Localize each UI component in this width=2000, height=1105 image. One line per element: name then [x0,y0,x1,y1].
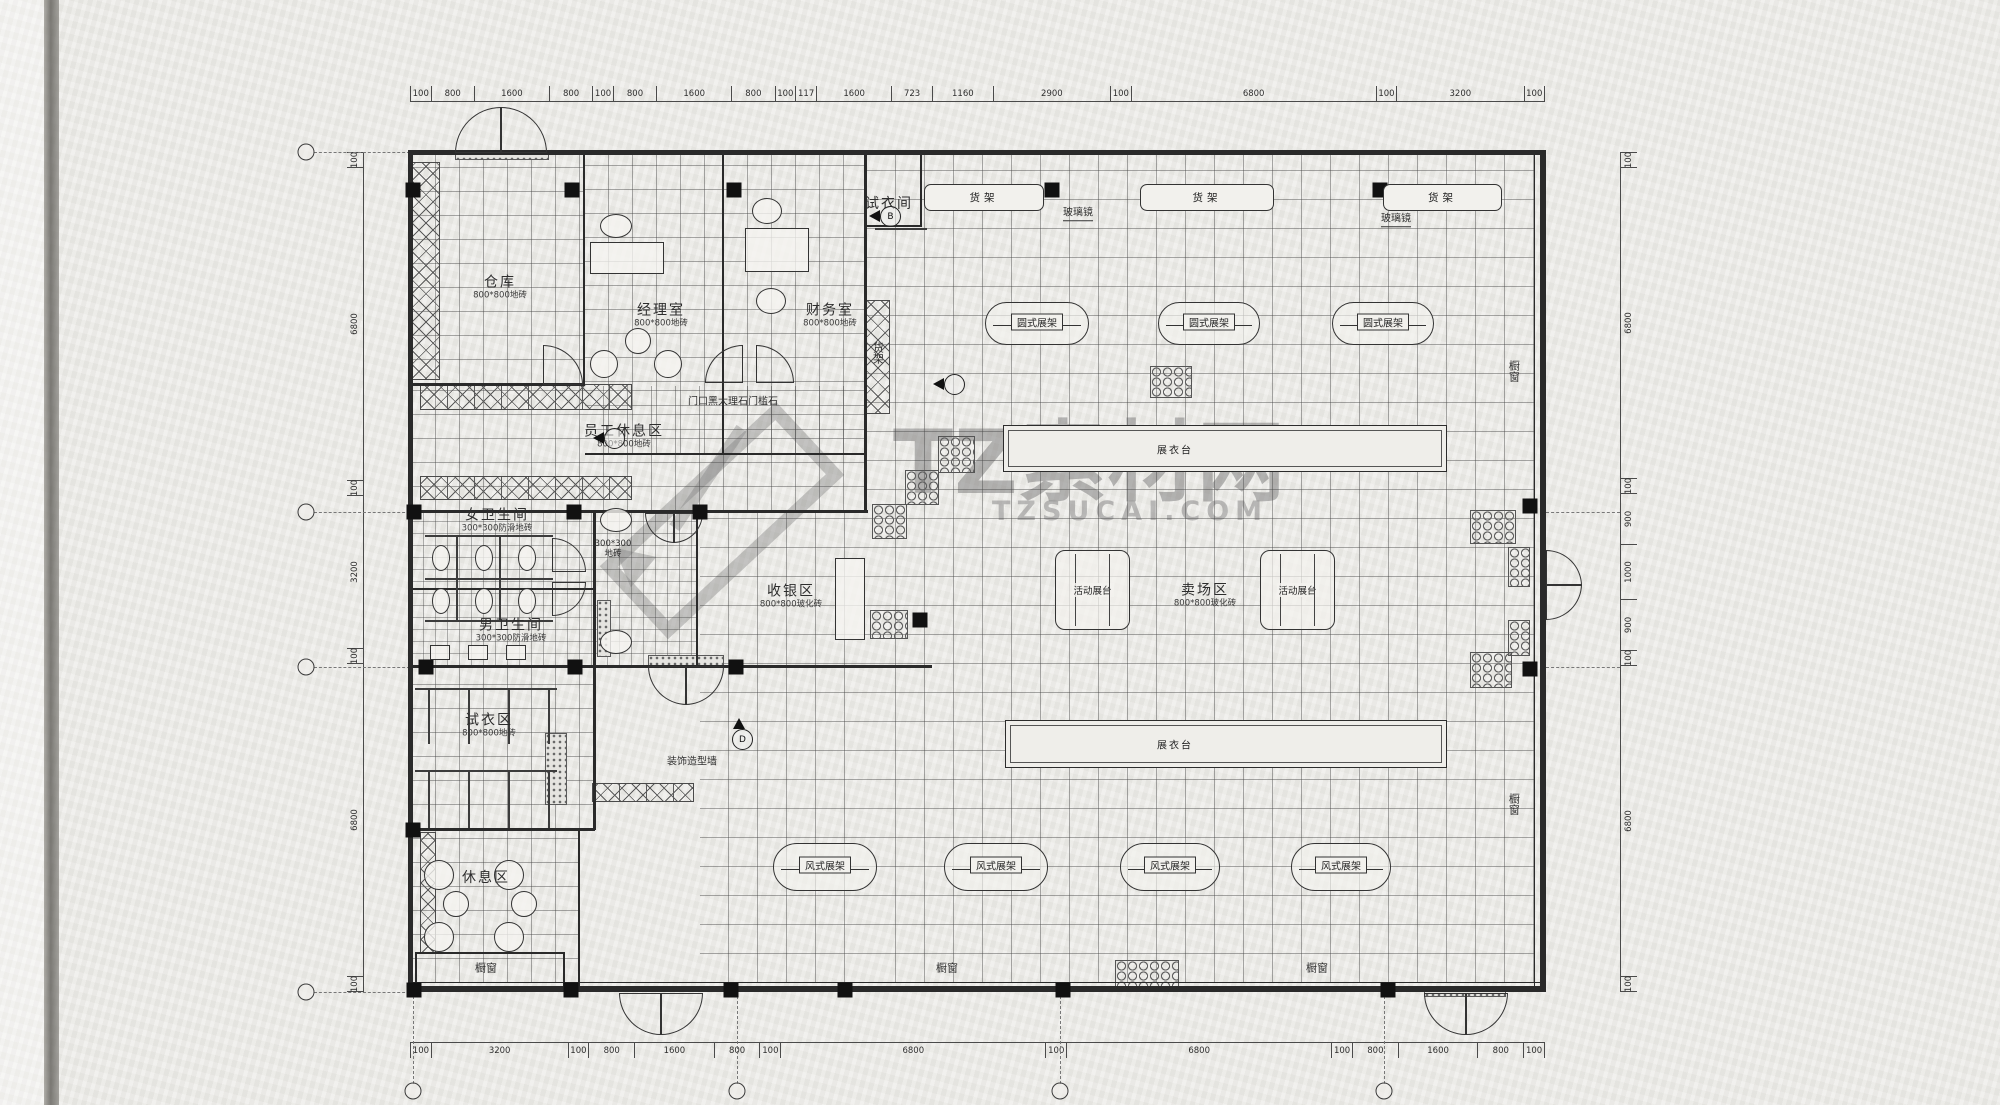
mosaic-patch [938,436,975,473]
corridor-finish-note: 300*300 地砖 [595,540,632,560]
floor-finish-note: 800*800地砖 [462,729,516,739]
room-label-women-restroom: 女卫生间300*300防滑地砖 [462,508,533,533]
dimension-segment: 1000 [1621,544,1637,599]
wall [1534,152,1535,992]
axis-line [314,152,410,153]
dimension-segment: 900 [1621,493,1637,544]
room-label-finance-office: 财务室800*800地砖 [803,303,857,328]
paper-edge-shadow [44,0,59,1105]
dimension-value: 3200 [489,1046,511,1056]
dimension-segment: 800 [613,86,656,101]
dimension-value: 1160 [952,89,974,99]
dimension-value: 800 [745,89,761,99]
dimension-value: 100 [570,1046,586,1056]
dimension-value: 6800 [1243,89,1265,99]
room-name: 财务室 [803,303,857,319]
room-label-fitting-area: 试衣区800*800地砖 [462,713,516,738]
door-swing-arc [1424,993,1466,1035]
dimension-segment: 800 [549,86,592,101]
sink-icon [600,508,632,532]
dimension-segment: 117 [795,86,816,101]
dimension-value: 100 [777,89,793,99]
door-swing-arc [1546,550,1582,586]
dimension-segment: 100 [1331,1043,1352,1058]
dimension-segment: 100 [1045,1043,1066,1058]
dimension-value: 100 [1334,1046,1350,1056]
marker-letter: B [880,206,901,227]
dimension-segment: 6800 [780,1043,1045,1058]
wall [410,828,595,831]
round-table-icon [511,891,537,917]
display-rack: 风式展架 [1120,843,1220,891]
dimension-value: 100 [350,152,360,168]
dimension-value: 100 [1624,152,1634,168]
shelf-hatch-band [592,783,694,802]
dimension-value: 800 [563,89,579,99]
structural-column [1056,983,1071,998]
dimension-value: 6800 [1624,810,1634,832]
dimension-segment: 100 [568,1043,589,1058]
dimension-value: 100 [1526,1046,1542,1056]
desk-icon [745,228,809,272]
dimension-segment: 100 [410,86,431,101]
dimension-segment: 6800 [1131,86,1376,101]
sofa-chair-icon [590,350,618,378]
dimension-segment: 800 [731,86,774,101]
dimension-value: 1600 [683,89,705,99]
floor-finish-note: 800*800地砖 [803,319,857,329]
dimension-value: 800 [1493,1046,1509,1056]
mosaic-patch [905,470,939,505]
lounge-chair-icon [424,860,454,890]
dimension-segment: 800 [1352,1043,1398,1058]
partition-line [499,535,501,578]
dimension-segment: 100 [759,1043,780,1058]
room-name: 收银区 [760,584,822,600]
axis-line [1384,996,1385,1084]
dimension-value: 2900 [1041,89,1063,99]
room-label-men-restroom: 男卫生间300*300防滑地砖 [476,618,547,643]
wall [722,152,724,455]
window-note-5: 橱窗 [1507,793,1520,815]
dimension-segment: 100 [347,152,363,167]
dimension-value: 100 [350,648,360,664]
wall [696,512,698,667]
structural-column [693,505,708,520]
axis-line [1546,512,1620,513]
partition-line [508,772,510,828]
dimension-value: 1000 [1624,561,1634,583]
dimension-value: 6800 [1624,312,1634,334]
room-name: 男卫生间 [476,618,547,634]
mosaic-patch [872,504,907,539]
grid-bubble [1376,1083,1393,1100]
movable-display-stage: 活动展台 [1260,550,1335,630]
partition-line [425,535,553,537]
fixture-label: 展衣台 [1154,441,1196,456]
partition-line [456,578,458,621]
fixture-label: 风式展架 [1315,857,1367,874]
dimension-segment: 100 [1523,1043,1545,1058]
dimension-segment: 1160 [932,86,993,101]
grid-bubble [298,144,315,161]
partition-line [468,772,470,828]
structural-column [838,983,853,998]
dimension-value: 800 [627,89,643,99]
marker-letter [604,428,625,449]
floor-finish-note: 800*800玻化砖 [760,600,822,610]
urinal-icon [430,645,450,660]
partition-line [548,772,550,828]
dimension-value: 1600 [501,89,523,99]
mosaic-patch [1508,547,1530,587]
room-label-sales-area: 卖场区800*800玻化砖 [1174,583,1236,608]
dimension-segment: 100 [1621,976,1637,992]
dimension-value: 100 [1624,478,1634,494]
dimension-value: 800 [445,89,461,99]
structural-column [419,660,434,675]
grid-bubble [298,504,315,521]
elevation-marker: B [876,206,900,230]
dimension-segment: 6800 [347,663,363,975]
office-chair-icon [600,214,632,238]
structural-column [1045,183,1060,198]
dimension-value: 800 [604,1046,620,1056]
dimension-value: 6800 [350,313,360,335]
dimension-value: 900 [1624,511,1634,527]
dimension-segment: 100 [1621,650,1637,665]
structural-column [1381,983,1396,998]
structural-column [1523,499,1538,514]
grid-bubble [298,984,315,1001]
shelf-fixture: 货架 [1383,184,1502,211]
floor-finish-note: 800*800玻化砖 [1174,599,1236,609]
mosaic-patch [1470,510,1516,544]
axis-line [314,992,410,993]
display-rack: 风式展架 [944,843,1048,891]
dimension-value: 6800 [902,1046,924,1056]
mirror-note-2: 玻璃镜 [1381,213,1411,227]
shelf-hatch-band [420,476,632,500]
elevation-marker [600,428,624,452]
dimension-row-left: 100680010032001006800100 [347,152,364,992]
wall [578,830,580,990]
dimension-segment: 100 [347,976,363,992]
dimension-segment: 800 [431,86,474,101]
toilet-icon [432,588,450,614]
shelf-fixture: 货架 [924,184,1044,211]
round-display-rack: 圆式展架 [1332,302,1434,345]
dimension-segment: 900 [1621,599,1637,650]
display-table: 展衣台 [1005,720,1447,768]
office-chair-icon [756,288,786,314]
dimension-segment: 1600 [634,1043,714,1058]
dimension-value: 100 [413,89,429,99]
room-name: 女卫生间 [462,508,533,524]
structural-column [724,983,739,998]
dimension-segment: 6800 [1621,665,1637,976]
dimension-row-bottom: 1003200100800160080010068001006800100800… [410,1042,1545,1058]
cashier-counter-icon [835,558,865,640]
floor-finish-note: 300*300防滑地砖 [476,634,547,644]
structural-column [406,183,421,198]
wall [920,152,922,227]
structural-column [567,505,582,520]
toilet-icon [432,545,450,571]
dimension-value: 117 [798,89,814,99]
fixture-label: 圆式展架 [1183,313,1235,330]
grid-bubble [729,1083,746,1100]
door-swing-arc [501,107,547,153]
dimension-value: 100 [413,1046,429,1056]
toilet-icon [518,545,536,571]
wall [410,982,1541,983]
partition-line [425,578,553,580]
dimension-segment: 100 [1621,152,1637,167]
dimension-segment: 100 [1524,86,1546,101]
floor-finish-note: 800*800地砖 [473,291,527,301]
fixture-label: 风式展架 [970,857,1022,874]
toilet-icon [475,588,493,614]
dimension-segment: 800 [588,1043,634,1058]
room-name: 仓库 [473,275,527,291]
dimension-segment: 100 [1376,86,1397,101]
floor-tiles [412,830,578,982]
wall [408,150,413,992]
dimension-segment: 100 [775,86,796,101]
dimension-value: 100 [1624,976,1634,992]
dimension-segment: 723 [891,86,932,101]
dimension-value: 100 [350,480,360,496]
dimension-segment: 1600 [474,86,549,101]
dimension-segment: 3200 [1396,86,1523,101]
partition-line [456,535,458,578]
dimension-segment: 6800 [347,167,363,479]
dimension-segment: 1600 [816,86,891,101]
dimension-segment: 100 [1621,478,1637,493]
structural-column [407,983,422,998]
dimension-value: 100 [1048,1046,1064,1056]
dimension-value: 900 [1624,617,1634,633]
movable-display-stage: 活动展台 [1055,550,1130,630]
wall [415,952,565,954]
room-label-warehouse: 仓库800*800地砖 [473,275,527,300]
dimension-segment: 100 [1110,86,1131,101]
dimension-segment: 100 [592,86,613,101]
sink-icon [600,630,632,654]
structural-column [1523,662,1538,677]
dimension-segment: 1600 [1398,1043,1478,1058]
dimension-segment: 3200 [347,495,363,648]
dimension-value: 100 [762,1046,778,1056]
dimension-value: 6800 [350,809,360,831]
wall [583,152,585,385]
toilet-icon [518,588,536,614]
toilet-icon [475,545,493,571]
fixture-label: 风式展架 [1144,857,1196,874]
display-rack: 风式展架 [1291,843,1391,891]
structural-column [727,183,742,198]
round-display-rack: 圆式展架 [985,302,1089,345]
dimension-segment: 6800 [1066,1043,1331,1058]
window-note-1: 橱窗 [475,963,497,976]
desk-icon [590,242,664,274]
shelf-fixture: 货架 [1140,184,1274,211]
room-name: 休息区 [462,871,510,887]
dimension-value: 100 [1624,650,1634,666]
threshold-note: 门口黑大理石门槛石 [688,396,778,408]
dimension-segment: 3200 [431,1043,568,1058]
structural-column [407,505,422,520]
office-chair-icon [752,198,782,224]
dimension-value: 6800 [1188,1046,1210,1056]
marker-letter: D [732,729,753,750]
door-swing-arc [1466,993,1508,1035]
axis-line [314,667,410,668]
lounge-chair-icon [494,922,524,952]
dimension-row-top: 1008001600800100800160080010011716007231… [410,86,1545,102]
window-note-3: 橱窗 [1306,963,1328,976]
paper-margin [0,0,44,1105]
dimension-value: 1600 [664,1046,686,1056]
door-swing-arc [661,993,703,1035]
mosaic-patch [1470,652,1512,688]
partition-line [415,770,557,772]
grid-bubble [1052,1083,1069,1100]
shelf-note-vertical: 货架 [871,342,884,364]
door-swing-arc [619,993,661,1035]
structural-column [568,660,583,675]
dimension-value: 3200 [350,561,360,583]
urinal-icon [506,645,526,660]
floor-finish-note: 800*800地砖 [634,319,688,329]
dimension-value: 1600 [843,89,865,99]
dimension-segment: 6800 [1621,167,1637,478]
dimension-value: 3200 [1450,89,1472,99]
wall [408,150,1545,155]
partition-line [428,688,430,744]
fixture-label: 活动展台 [1276,583,1318,597]
dimension-value: 100 [1526,89,1542,99]
dimension-segment: 800 [1477,1043,1523,1058]
dimension-value: 1600 [1427,1046,1449,1056]
mirror-note-1: 玻璃镜 [1063,207,1093,221]
axis-line [1546,667,1620,668]
axis-line [314,512,410,513]
lounge-chair-icon [424,922,454,952]
mosaic-patch [1508,620,1530,656]
partition-line [499,578,501,621]
mosaic-patch [1150,366,1192,398]
axis-line [737,996,738,1084]
room-label-manager-office: 经理室800*800地砖 [634,303,688,328]
floor-finish-note: 300*300防滑地砖 [462,524,533,534]
dimension-value: 100 [1113,89,1129,99]
marker-arrow-icon [869,210,880,222]
fixture-label: 风式展架 [799,857,851,874]
dimension-segment: 1600 [656,86,731,101]
shelf-hatch-band [420,384,632,410]
dimension-segment: 2900 [993,86,1111,101]
elevation-marker: D [728,729,752,753]
marker-arrow-icon [733,718,745,729]
room-name: 卖场区 [1174,583,1236,599]
fixture-label: 圆式展架 [1011,313,1063,330]
structural-column [565,183,580,198]
floor-plan-canvas: 1008001600800100800160080010011716007231… [0,0,2000,1105]
partition-line [415,688,557,690]
room-label-cashier-area: 收银区800*800玻化砖 [760,584,822,609]
dimension-segment: 100 [347,480,363,495]
urinal-icon [468,645,488,660]
door-swing-arc [648,666,687,705]
marker-arrow-icon [593,432,604,444]
structural-column [729,660,744,675]
round-table-icon [443,891,469,917]
dimension-segment: 100 [347,648,363,663]
structural-column [564,983,579,998]
wall [585,453,866,455]
dimension-value: 100 [1378,89,1394,99]
grid-bubble [405,1083,422,1100]
marker-arrow-icon [933,378,944,390]
dimension-value: 800 [1367,1046,1383,1056]
marker-letter [944,374,965,395]
mosaic-patch [870,610,908,639]
fixture-label: 活动展台 [1071,583,1113,597]
decor-wall-note: 装饰造型墙 [667,756,717,768]
dimension-value: 100 [595,89,611,99]
grid-bubble [298,659,315,676]
partition-line [428,772,430,828]
window-note-2: 橱窗 [936,963,958,976]
fixture-label: 展衣台 [1154,737,1196,752]
axis-line [413,996,414,1084]
display-table: 展衣台 [1003,425,1447,472]
room-name: 试衣区 [462,713,516,729]
elevation-marker [940,374,964,398]
door-swing-arc [455,107,501,153]
sofa-chair-icon [654,350,682,378]
structural-column [406,823,421,838]
round-display-rack: 圆式展架 [1158,302,1260,345]
door-swing-arc [1546,584,1582,620]
room-label-lounge-area: 休息区 [462,871,510,887]
partition-line [548,688,550,744]
dimension-value: 723 [904,89,920,99]
window-note-4: 橱窗 [1507,360,1520,382]
tea-table-icon [625,328,651,354]
display-rack: 风式展架 [773,843,877,891]
dimension-value: 100 [350,976,360,992]
structural-column [913,613,928,628]
room-name: 经理室 [634,303,688,319]
fixture-label: 圆式展架 [1357,313,1409,330]
axis-line [1060,996,1061,1084]
dimension-row-right: 100680010090010009001006800100 [1620,152,1637,992]
